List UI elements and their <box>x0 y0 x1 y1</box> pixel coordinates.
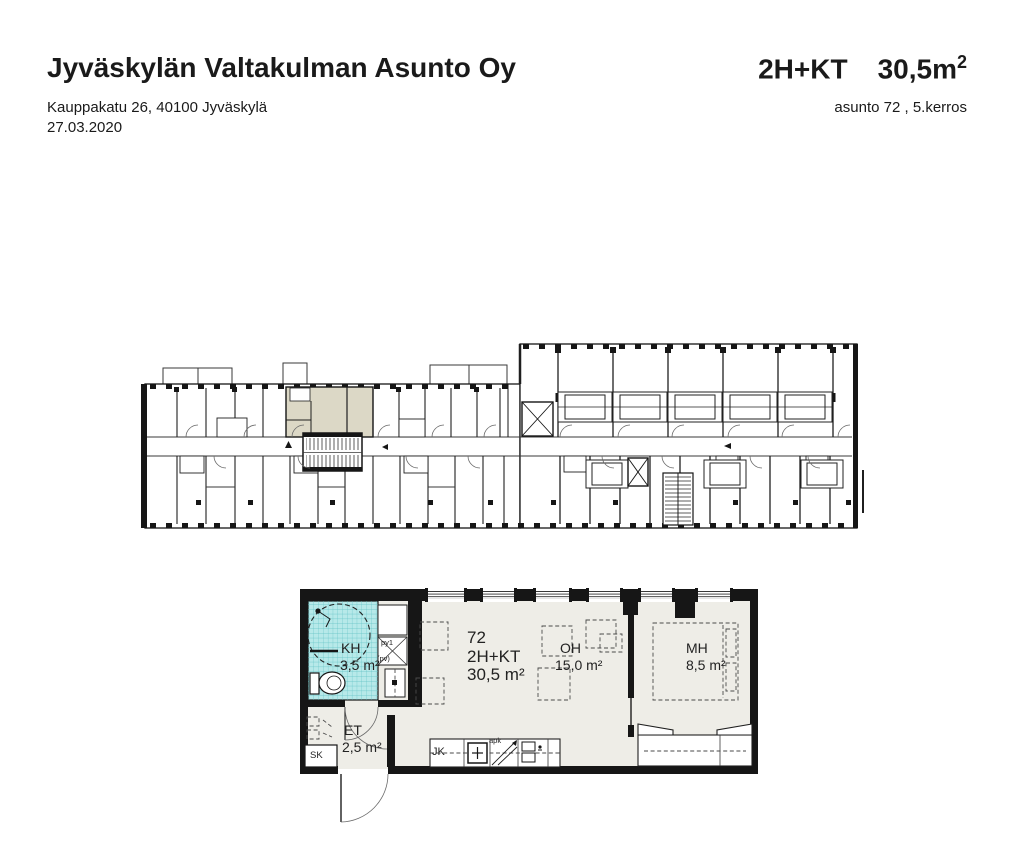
toilet <box>310 672 345 694</box>
address: Kauppakatu 26, 40100 Jyväskylä <box>47 99 267 116</box>
apartment-detail-plan <box>290 585 770 830</box>
apartment-area-sup: 2 <box>957 52 967 72</box>
apartment-summary: 2H+KT30,5m2 asunto 72 , 5.kerros <box>758 52 967 116</box>
washer-closet-label: py1 <box>381 639 393 647</box>
apartment-area: 30,5m <box>878 53 957 84</box>
dishwasher-label: apk <box>489 737 501 745</box>
room-label-oh: OH <box>560 641 581 655</box>
apartment-area-label: 30,5 m² <box>467 666 525 683</box>
room-area-et: 2,5 m² <box>342 740 382 754</box>
room-area-kh: 3,5 m² <box>340 658 380 672</box>
balconies <box>163 363 507 384</box>
fridge-label: JK <box>432 747 445 758</box>
apartment-type-area: 2H+KT30,5m2 <box>758 52 967 85</box>
apartment-number-label: 72 <box>467 629 486 646</box>
stairwell <box>303 433 362 471</box>
cleaning-closet-label: SK <box>310 751 323 761</box>
apartment-info: asunto 72 , 5.kerros <box>758 99 967 116</box>
highlighted-apartment <box>286 387 373 437</box>
room-label-et: ET <box>344 723 362 737</box>
building-overview-plan <box>0 335 1024 540</box>
room-area-oh: 15,0 m² <box>555 658 602 672</box>
entry-door-arc <box>341 774 388 822</box>
stove <box>468 743 487 763</box>
room-label-kh: KH <box>341 641 360 655</box>
room-area-mh: 8,5 m² <box>686 658 726 672</box>
floorplan-sheet: Jyväskylän Valtakulman Asunto Oy Kauppak… <box>0 0 1024 854</box>
apartment-type: 2H+KT <box>758 53 847 84</box>
page-title: Jyväskylän Valtakulman Asunto Oy <box>47 52 516 84</box>
washer-note-label: (pv) <box>377 655 390 663</box>
apartment-type-label: 2H+KT <box>467 648 520 665</box>
date: 27.03.2020 <box>47 119 122 136</box>
room-label-mh: MH <box>686 641 708 655</box>
stairwell-2 <box>663 473 693 525</box>
